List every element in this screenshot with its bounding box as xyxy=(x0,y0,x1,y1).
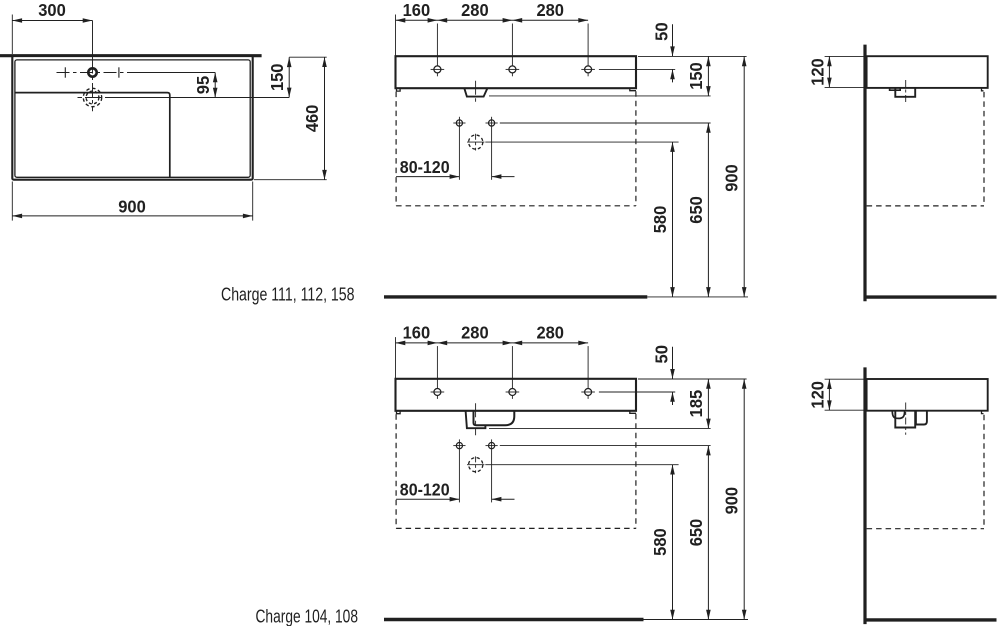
svg-text:280: 280 xyxy=(461,0,489,20)
svg-text:580: 580 xyxy=(650,528,670,556)
svg-text:185: 185 xyxy=(686,390,706,418)
svg-text:650: 650 xyxy=(686,196,706,224)
svg-text:80-120: 80-120 xyxy=(400,157,450,177)
svg-text:50: 50 xyxy=(651,22,671,41)
svg-text:120: 120 xyxy=(808,381,828,409)
svg-text:650: 650 xyxy=(686,519,706,547)
svg-text:Charge 104, 108: Charge 104, 108 xyxy=(256,606,359,626)
svg-text:Charge 111, 112, 158: Charge 111, 112, 158 xyxy=(221,283,355,304)
svg-text:80-120: 80-120 xyxy=(400,479,450,499)
svg-text:900: 900 xyxy=(118,197,146,217)
svg-text:95: 95 xyxy=(193,75,213,94)
svg-text:120: 120 xyxy=(808,58,828,86)
svg-text:280: 280 xyxy=(536,323,564,343)
svg-text:300: 300 xyxy=(38,0,66,20)
svg-text:160: 160 xyxy=(403,0,431,20)
svg-text:160: 160 xyxy=(403,323,431,343)
svg-text:900: 900 xyxy=(722,487,742,515)
svg-text:280: 280 xyxy=(461,323,489,343)
svg-text:900: 900 xyxy=(722,164,742,192)
svg-text:150: 150 xyxy=(267,63,287,91)
svg-text:280: 280 xyxy=(536,0,564,20)
svg-text:460: 460 xyxy=(302,104,322,132)
svg-text:580: 580 xyxy=(650,206,670,234)
svg-text:50: 50 xyxy=(651,345,671,364)
svg-text:150: 150 xyxy=(686,62,706,90)
